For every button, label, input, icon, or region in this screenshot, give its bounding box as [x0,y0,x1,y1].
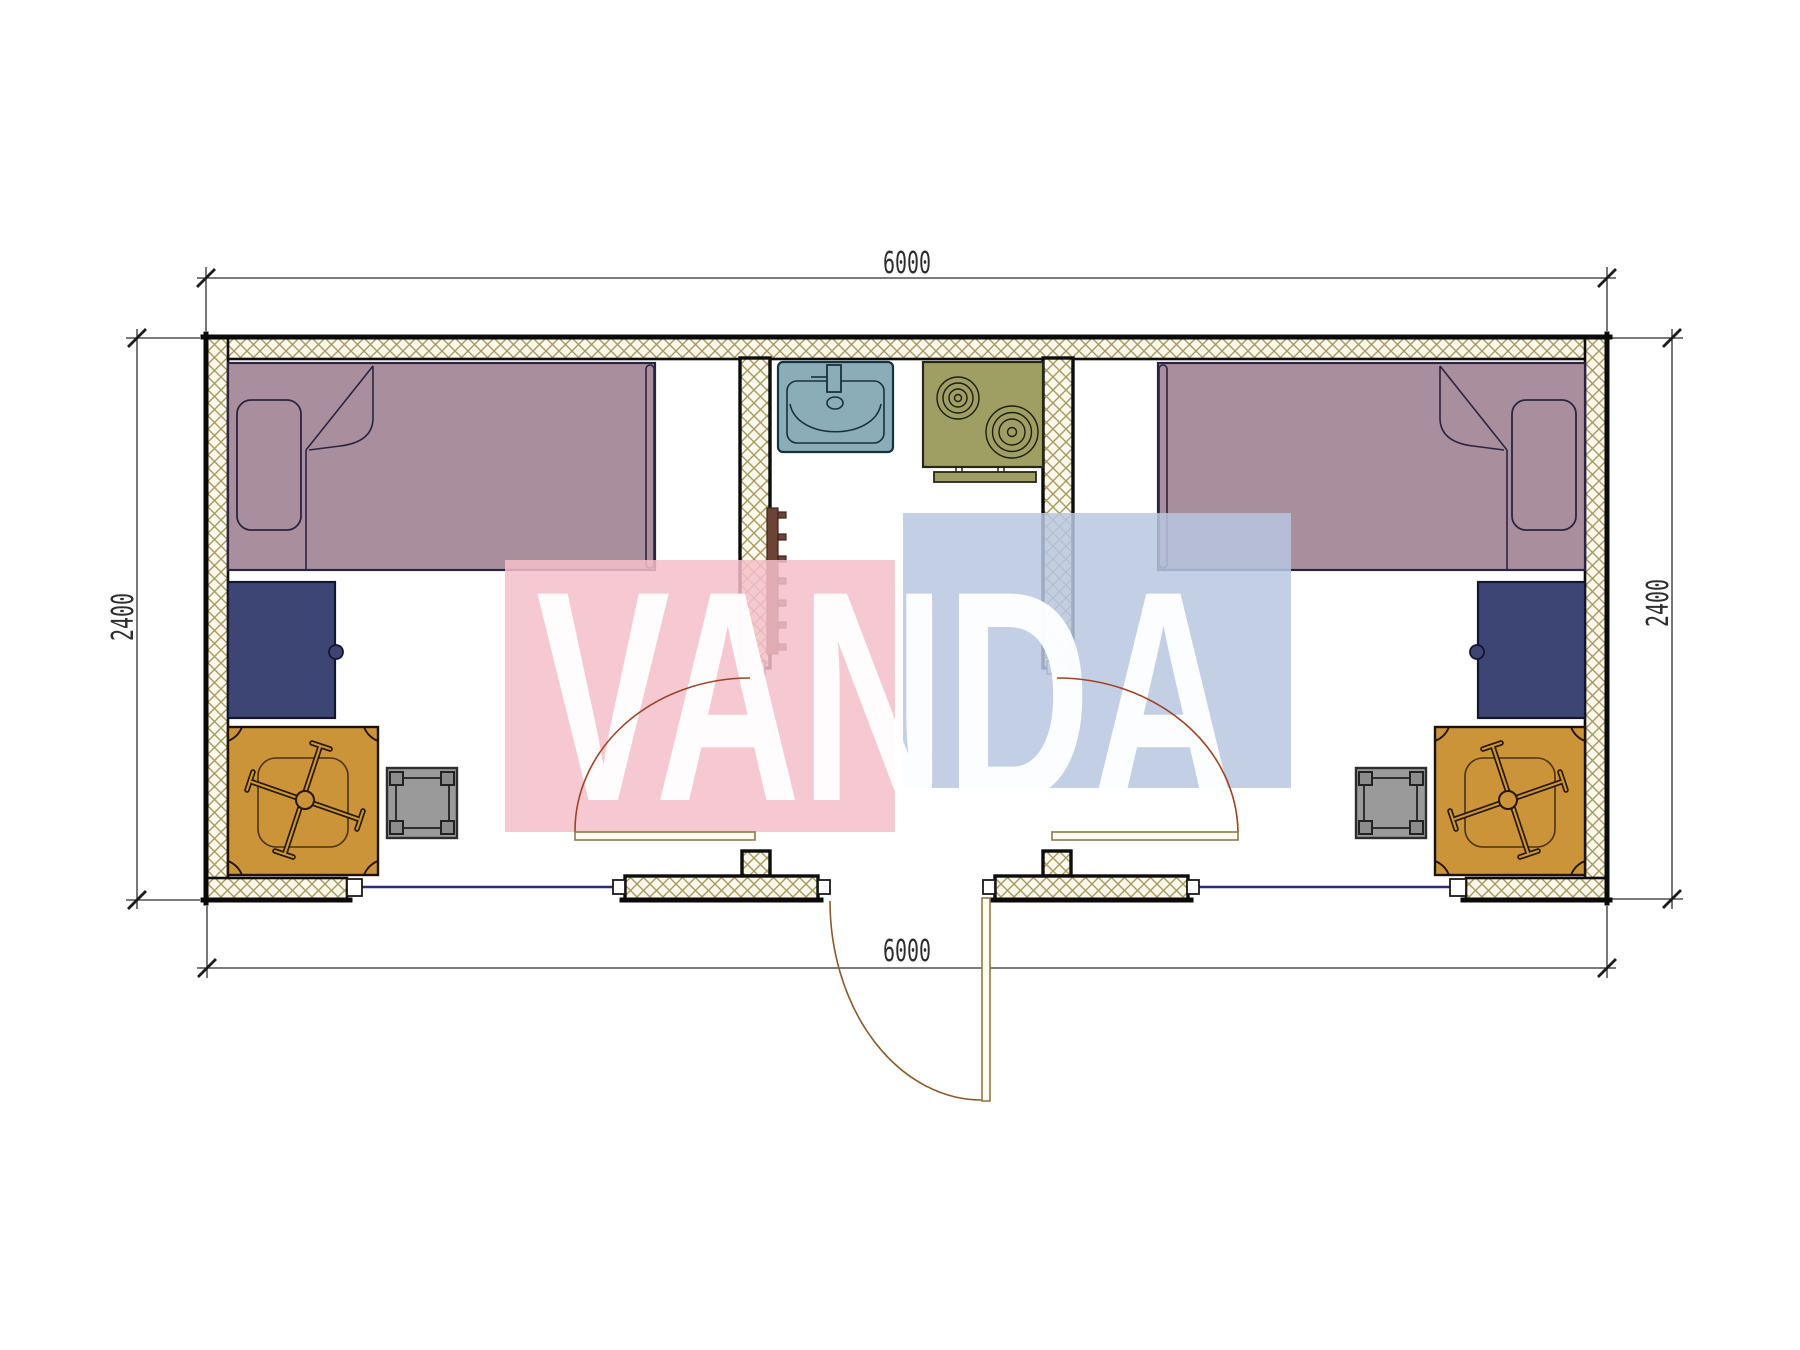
dimension-right-label: 2400 [1641,579,1676,627]
desk-top [228,582,335,718]
desk [228,582,343,718]
dimension-bottom-label: 6000 [883,934,931,969]
floor-plan-page: 6000 6000 2400 2400 [0,0,1800,1350]
wall-right [1585,337,1607,900]
dimension-top: 6000 [197,246,1616,331]
stove [923,362,1043,482]
stool [387,768,457,838]
dimension-bottom: 6000 [197,906,1616,978]
watermark-text: VANDA [536,528,1236,864]
wall-bottom-left-pier [625,876,818,900]
office-chair [228,727,378,875]
wall-left [206,337,228,900]
door-swing-arc-entrance [830,901,982,1100]
jamb [613,880,625,894]
wall-bottom-left-corner [206,878,347,900]
stool-leg [390,772,403,785]
dimension-right: 2400 [1610,329,1683,909]
chair-hub [296,791,314,809]
jamb [1450,879,1466,896]
sink [778,362,893,452]
dimension-left-label: 2400 [106,593,141,641]
jamb [347,879,362,896]
wall-bottom-right-corner [1466,878,1607,900]
door-leaf-right-room [1052,832,1238,840]
stool-leg [441,821,454,834]
jamb [983,880,995,894]
floor-plan-drawing: 6000 6000 2400 2400 [0,0,1800,1350]
radiator-fin [778,512,786,518]
watermark: VANDA [505,513,1291,864]
jamb [1187,880,1199,894]
wall-top [206,337,1607,359]
chair-right-mirror [1435,727,1585,875]
door-leaf-entrance [982,898,990,1101]
sink-faucet [827,365,841,392]
stool-right-mirror [1356,768,1426,838]
dimension-top-label: 6000 [883,246,931,281]
stove-top [923,362,1043,467]
stool-leg [390,821,403,834]
desk-knob [329,645,343,659]
desk-right-mirror [1470,582,1585,718]
stove-front-panel [934,472,1036,482]
jamb [818,880,830,894]
door-leaf-left-room [575,832,755,840]
bed-pillow [237,400,301,530]
wall-bottom-right-pier [995,876,1188,900]
dimension-left: 2400 [106,329,200,909]
stool-leg [441,772,454,785]
